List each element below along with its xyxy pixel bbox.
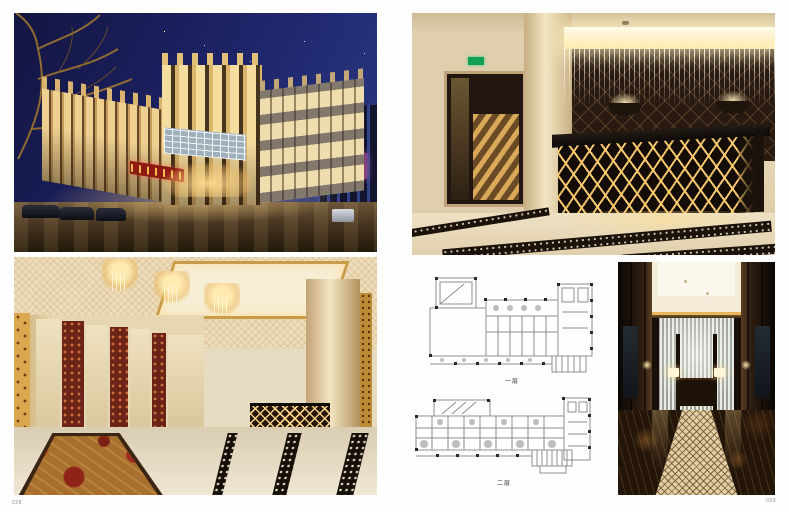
marble-panel [86, 325, 108, 433]
end-pillar [652, 318, 659, 410]
downlight [706, 292, 709, 295]
parked-car [22, 205, 60, 218]
photo-corridor [618, 262, 775, 495]
floor-reflection [652, 410, 668, 470]
book-spread: { "page": { "left_number": "028", "right… [0, 0, 789, 512]
chandelier [154, 271, 190, 307]
photo-hotel-lobby [14, 257, 377, 495]
floor-reflection [725, 410, 741, 470]
mirror-panel [451, 78, 469, 200]
side-mirror [755, 326, 770, 398]
desk-end-panel [738, 136, 764, 213]
caption-first-floor: 一层 [424, 376, 600, 385]
red-lattice-panel [110, 327, 128, 431]
wall-lamp-glow [642, 360, 652, 370]
entrance-glow [164, 163, 254, 197]
reception-desk-backlit-front [558, 136, 764, 223]
exit-sign [468, 57, 484, 65]
stair-doorway [444, 71, 526, 207]
floor-plan-first-floor [424, 272, 600, 376]
ceiling-spotlight [622, 21, 629, 25]
floor-plan-second-floor [412, 394, 596, 476]
marble-panel [36, 319, 60, 437]
page-number-right: 029 [746, 498, 776, 504]
wall-lamp-glow [741, 360, 751, 370]
caption-second-floor: 二层 [412, 478, 596, 487]
crystal-chandelier-bar [564, 27, 775, 49]
gold-lattice-pilaster [14, 313, 30, 443]
chandelier [204, 283, 240, 319]
table-lamp [668, 368, 679, 377]
end-pillar [734, 318, 741, 410]
photo-hotel-exterior-night [14, 13, 377, 252]
wall-seam [644, 262, 646, 422]
parked-car [60, 207, 94, 220]
chandelier [102, 259, 138, 295]
downlight [684, 280, 687, 283]
parked-car [96, 208, 126, 221]
red-lattice-panel [152, 333, 166, 427]
ceiling-inner-panel [658, 262, 735, 296]
marble-panel [130, 329, 150, 429]
table-lamp [714, 368, 725, 377]
side-mirror [623, 326, 638, 398]
console-table [676, 378, 716, 406]
wall-seam [747, 262, 749, 422]
golden-staircase [473, 114, 519, 200]
parked-van [332, 209, 354, 222]
red-lattice-panel [62, 321, 84, 433]
facade-right-wing [260, 78, 364, 203]
page-number-left: 028 [12, 500, 22, 506]
photo-reception-desk [412, 13, 775, 255]
back-wall [168, 335, 204, 427]
stars [164, 31, 165, 32]
